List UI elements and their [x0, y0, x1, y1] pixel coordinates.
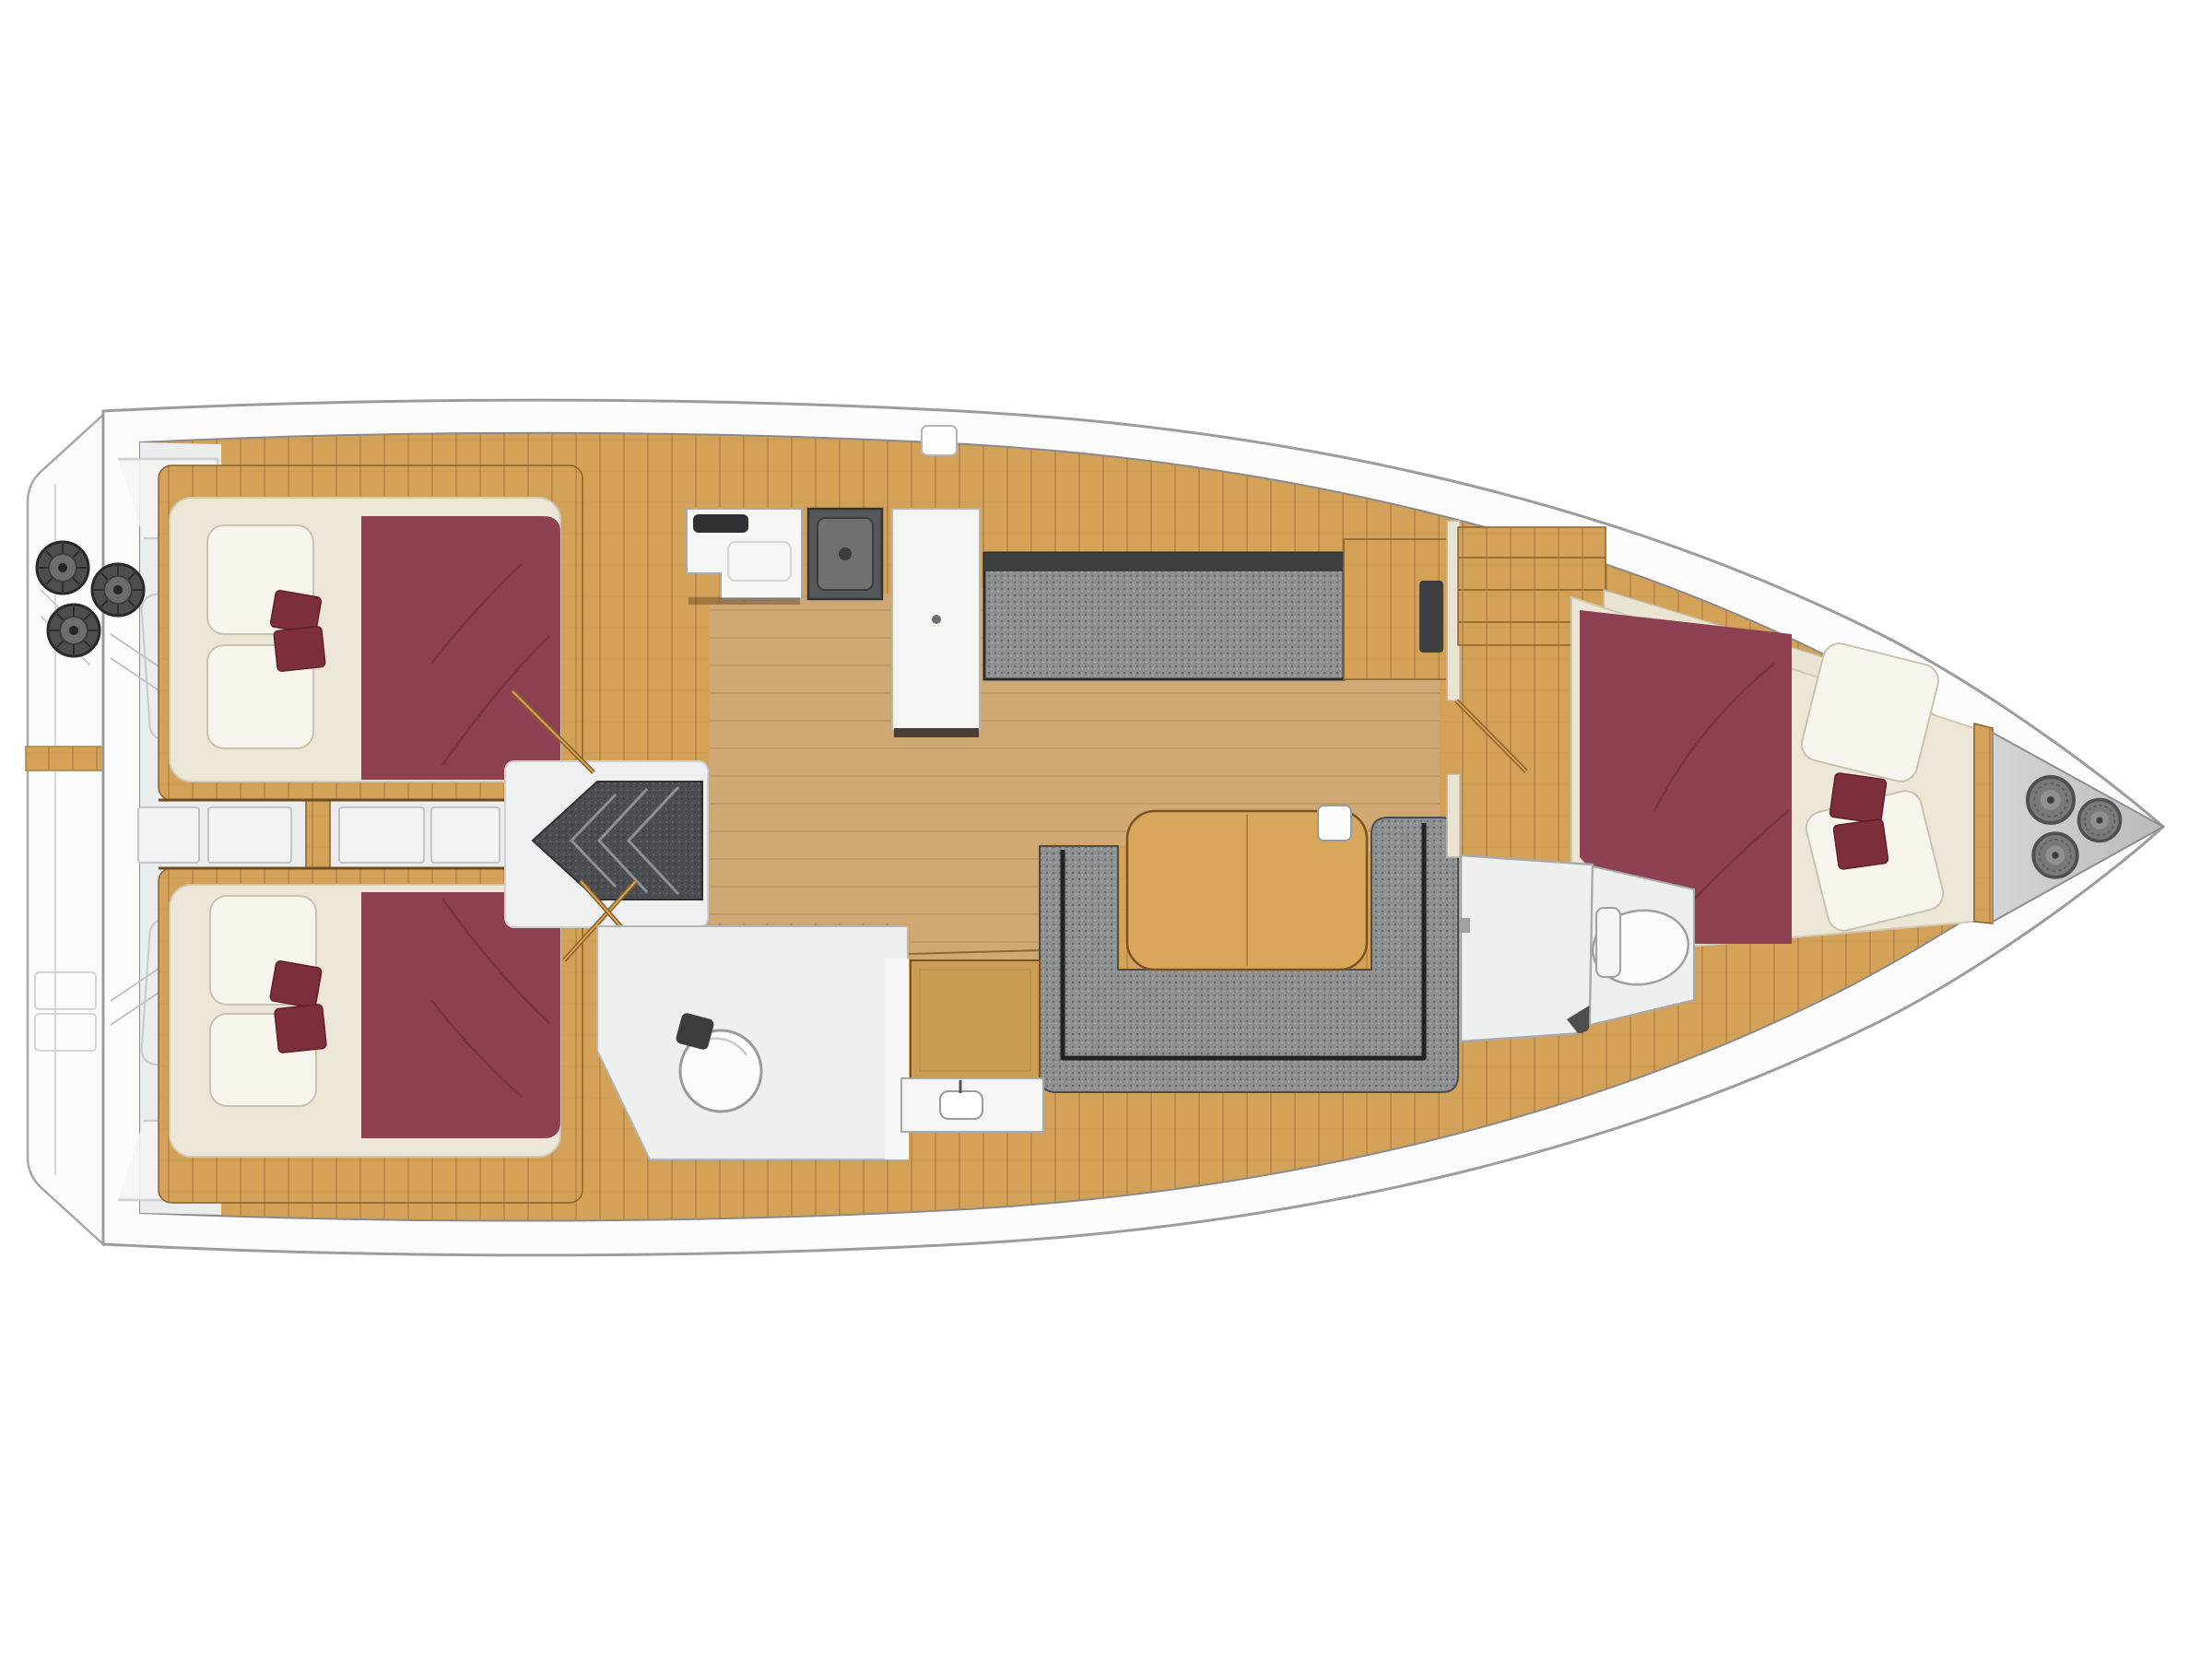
port-settee-seat [984, 553, 1344, 679]
port-settee [984, 553, 1344, 679]
cockpit-post [306, 800, 330, 868]
aft-head-basin [940, 1091, 982, 1119]
mast-slot [1419, 581, 1443, 653]
companionway [505, 761, 708, 927]
aft-cabin-port [159, 465, 582, 800]
bulkhead-wall [1447, 774, 1460, 857]
bow-berth-edge [1974, 724, 1993, 924]
swim-platform [26, 415, 111, 1244]
aft-head-door-panel [911, 960, 1040, 1080]
shower-fitting [1459, 918, 1470, 933]
aft-cabin-port-red-cushion [270, 590, 325, 672]
aft-head [597, 926, 1043, 1159]
toilet-tank [1596, 908, 1620, 977]
fridge-handle [932, 615, 941, 624]
salon [1040, 806, 1458, 1092]
aft-head-floor [597, 926, 908, 1159]
rope-coil-icon [2033, 833, 2077, 877]
winch-icon [48, 605, 100, 656]
stove-burner [839, 547, 852, 560]
deck-hatch [922, 426, 957, 455]
counter-shadow [688, 597, 800, 605]
fridge-shadow [894, 728, 979, 737]
winch-icon [92, 564, 144, 616]
table-lamp [1318, 806, 1351, 841]
rope-coil-icon [2079, 800, 2121, 841]
galley-sink [693, 514, 748, 533]
yacht-floorplan-diagram [0, 0, 2212, 1659]
shower-floor [1461, 855, 1593, 1041]
gangway-step [26, 747, 111, 771]
sideboard [1344, 539, 1454, 679]
aft-cabin-starboard-duvet [361, 892, 560, 1138]
rope-coil-icon [2028, 777, 2074, 823]
port-settee-backrest [984, 553, 1344, 571]
cockpit-engine-hatches [138, 800, 500, 868]
yacht-floorplan-page [0, 0, 2212, 1659]
winch-icon [37, 542, 88, 594]
